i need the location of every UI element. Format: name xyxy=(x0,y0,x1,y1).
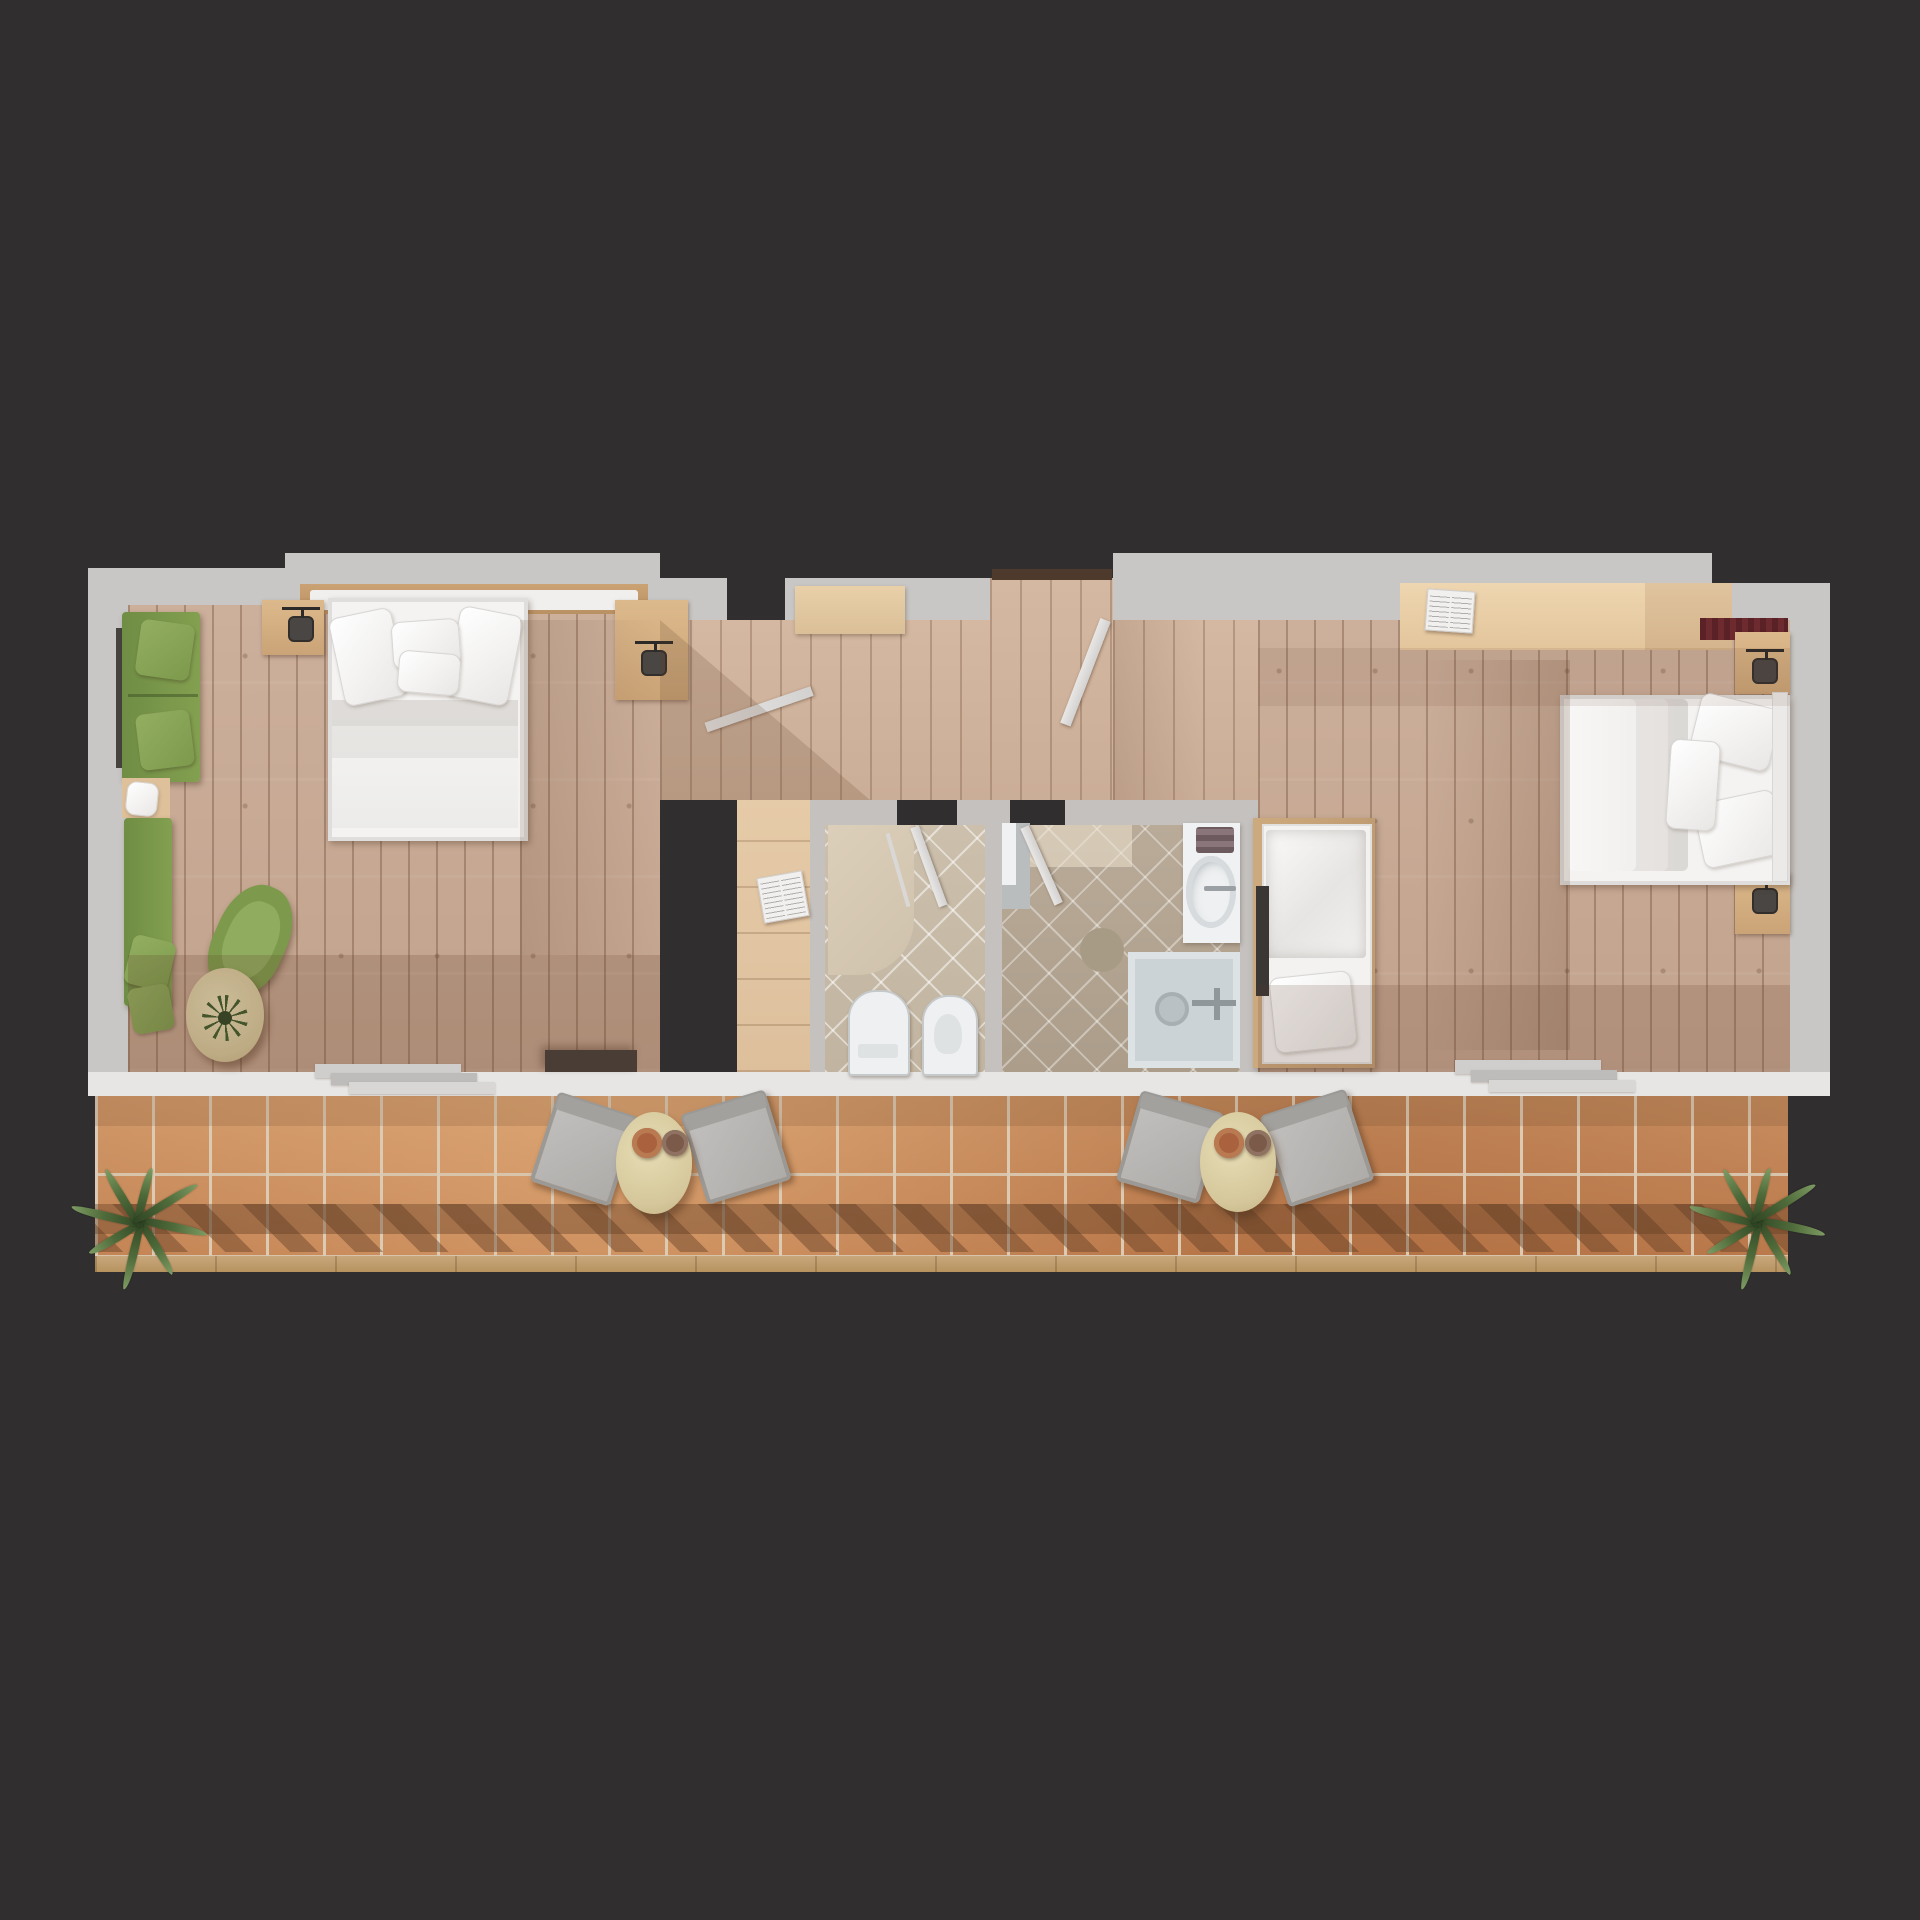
wall-top-right-2 xyxy=(1400,553,1712,583)
wall-lamp xyxy=(1752,888,1778,914)
shower-zone xyxy=(828,825,914,975)
floor-hallway-right xyxy=(1113,620,1258,800)
sofa-seam xyxy=(128,694,198,697)
wall-niche xyxy=(727,578,785,620)
bath-mat xyxy=(1080,928,1124,972)
pillow xyxy=(1665,738,1721,831)
pillow xyxy=(1268,970,1357,1054)
pillow xyxy=(396,649,461,696)
wall-right xyxy=(1790,610,1830,1078)
floor-plan-render xyxy=(0,0,1920,1920)
cup xyxy=(1214,1128,1244,1158)
toilet-lid-line xyxy=(858,1044,898,1058)
faucet xyxy=(1204,886,1236,891)
wall-lamp xyxy=(288,616,314,642)
bidet-bowl xyxy=(934,1014,962,1054)
shower-handle xyxy=(1214,988,1220,1020)
floor-hallway xyxy=(660,620,990,800)
terrace-table xyxy=(1200,1112,1276,1212)
terrace-steps-left xyxy=(315,1064,495,1096)
terrace-steps-right xyxy=(1455,1060,1635,1094)
open-book xyxy=(1425,588,1476,633)
terrace-edge xyxy=(95,1256,1788,1272)
single-bed-blanket xyxy=(1266,830,1366,958)
bath-wall-left xyxy=(810,800,825,1072)
wall-top-right xyxy=(1113,553,1400,620)
terrace-table xyxy=(616,1112,692,1214)
toilet xyxy=(848,990,910,1076)
entry-bench xyxy=(795,586,905,634)
bath-wall-top-b xyxy=(957,800,1010,825)
pillow xyxy=(124,780,159,817)
bath-wall-divider xyxy=(985,800,1002,1072)
floor-dressing-nook xyxy=(737,800,812,1072)
green-pillow xyxy=(135,709,195,771)
green-pillow xyxy=(126,983,175,1036)
shower-drain xyxy=(1155,992,1189,1026)
tv-panel xyxy=(1256,886,1269,996)
cup xyxy=(632,1128,662,1158)
media-console xyxy=(545,1050,637,1072)
cup xyxy=(1245,1130,1271,1156)
bath-wall-top-c xyxy=(1065,800,1258,825)
wall-lamp xyxy=(641,650,667,676)
entry-threshold xyxy=(992,569,1112,580)
headboard xyxy=(1772,692,1788,882)
duvet xyxy=(332,700,518,828)
washbasin xyxy=(1186,856,1236,928)
floor-entry xyxy=(990,578,1113,800)
towels xyxy=(1196,827,1234,853)
table-plant xyxy=(202,995,248,1041)
wall-lamp xyxy=(1752,658,1778,684)
cup xyxy=(662,1130,688,1156)
open-book xyxy=(756,870,809,923)
terrace-floor xyxy=(95,1096,1788,1258)
green-pillow xyxy=(134,619,195,682)
